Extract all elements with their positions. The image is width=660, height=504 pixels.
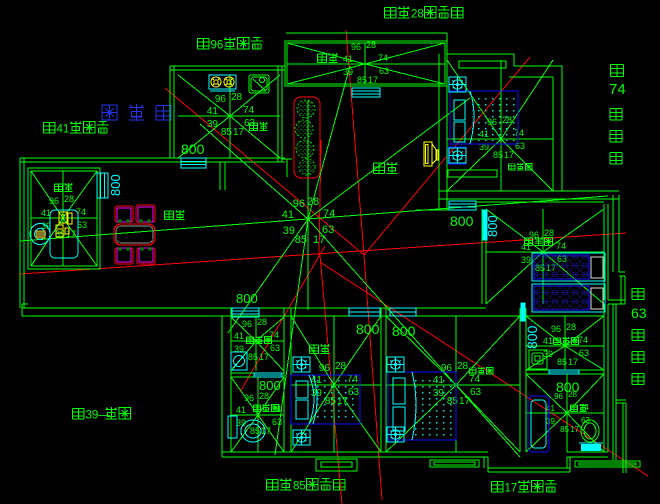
svg-text:800: 800 <box>356 321 380 337</box>
svg-text:74: 74 <box>609 81 626 98</box>
svg-text:17: 17 <box>233 127 245 138</box>
svg-text:96: 96 <box>351 42 361 52</box>
svg-text:17: 17 <box>368 75 378 85</box>
svg-text:96: 96 <box>49 196 59 206</box>
svg-text:63: 63 <box>631 305 647 321</box>
svg-text:85: 85 <box>557 357 567 367</box>
svg-text:41: 41 <box>546 404 555 413</box>
svg-text:28: 28 <box>259 391 269 401</box>
svg-text:63: 63 <box>470 387 482 398</box>
svg-text:74: 74 <box>514 128 524 138</box>
svg-text:41: 41 <box>236 405 246 415</box>
svg-text:28: 28 <box>457 361 469 372</box>
svg-text:63: 63 <box>579 348 589 358</box>
svg-text:28: 28 <box>566 322 576 332</box>
svg-text:85: 85 <box>357 75 367 85</box>
svg-text:28: 28 <box>335 361 347 372</box>
svg-text:96: 96 <box>242 319 252 329</box>
svg-text:28: 28 <box>307 196 319 208</box>
svg-text:800: 800 <box>236 291 258 306</box>
svg-text:17: 17 <box>259 352 269 362</box>
svg-text:39: 39 <box>546 417 555 426</box>
svg-text:17: 17 <box>261 426 271 436</box>
svg-text:39: 39 <box>283 225 295 237</box>
svg-text:74: 74 <box>243 105 255 116</box>
svg-text:85: 85 <box>493 150 503 160</box>
svg-text:41: 41 <box>41 208 51 218</box>
svg-text:800: 800 <box>392 323 416 339</box>
svg-text:74: 74 <box>578 335 588 345</box>
svg-text:85: 85 <box>293 481 306 493</box>
svg-text:96: 96 <box>244 393 254 403</box>
svg-text:39: 39 <box>207 119 219 130</box>
svg-text:63: 63 <box>77 220 87 230</box>
svg-text:96: 96 <box>211 40 224 52</box>
svg-text:800: 800 <box>556 379 580 395</box>
svg-text:17: 17 <box>570 425 579 434</box>
svg-text:17: 17 <box>313 234 325 246</box>
svg-text:41: 41 <box>543 336 553 346</box>
svg-text:63: 63 <box>379 66 389 76</box>
svg-text:96: 96 <box>293 198 305 210</box>
svg-text:39: 39 <box>521 255 531 265</box>
svg-text:800: 800 <box>181 141 205 157</box>
svg-text:39—: 39— <box>86 410 111 422</box>
svg-text:63: 63 <box>515 141 525 151</box>
svg-text:41: 41 <box>57 124 70 136</box>
svg-text:800: 800 <box>450 213 474 229</box>
svg-text:41: 41 <box>343 54 353 64</box>
svg-text:17: 17 <box>568 357 578 367</box>
svg-text:74: 74 <box>556 241 566 251</box>
svg-text:28: 28 <box>366 40 376 50</box>
svg-text:85: 85 <box>250 426 260 436</box>
svg-text:800: 800 <box>524 325 540 349</box>
svg-text:85: 85 <box>221 127 233 138</box>
svg-text:28: 28 <box>231 92 243 103</box>
svg-text:63: 63 <box>272 417 282 427</box>
svg-text:96: 96 <box>551 324 561 334</box>
svg-text:96: 96 <box>215 94 227 105</box>
svg-text:28: 28 <box>64 194 74 204</box>
svg-text:800: 800 <box>485 215 500 237</box>
svg-text:85: 85 <box>295 234 307 246</box>
svg-text:28: 28 <box>544 228 554 238</box>
svg-text:28: 28 <box>411 9 424 21</box>
svg-text:96: 96 <box>319 363 331 374</box>
svg-text:85: 85 <box>248 352 258 362</box>
svg-text:41: 41 <box>207 106 219 117</box>
svg-text:17: 17 <box>459 396 471 407</box>
svg-text:85: 85 <box>560 425 569 434</box>
svg-text:17: 17 <box>504 150 514 160</box>
svg-text:17: 17 <box>505 483 518 495</box>
svg-text:41: 41 <box>234 331 244 341</box>
svg-text:74: 74 <box>323 208 335 220</box>
svg-text:63: 63 <box>270 343 280 353</box>
svg-text:41: 41 <box>282 209 294 221</box>
svg-text:28: 28 <box>257 317 267 327</box>
svg-text:74: 74 <box>469 374 481 385</box>
svg-text:74: 74 <box>269 330 279 340</box>
svg-text:74: 74 <box>378 53 388 63</box>
svg-text:800: 800 <box>108 174 123 196</box>
svg-text:39: 39 <box>343 67 353 77</box>
